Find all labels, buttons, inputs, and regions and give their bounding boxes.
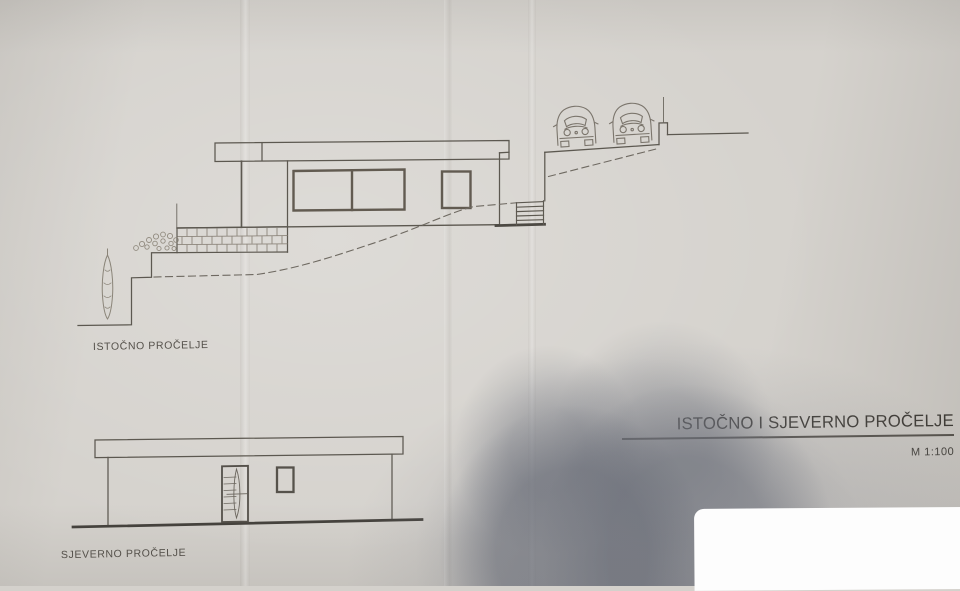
photographed-drawing-sheet: ISTOČNO PROČELJE SJEVERNO PROČELJE ISTOČ… [0,0,960,586]
overexposed-white-patch [694,507,960,591]
photo-vignette [0,0,960,586]
